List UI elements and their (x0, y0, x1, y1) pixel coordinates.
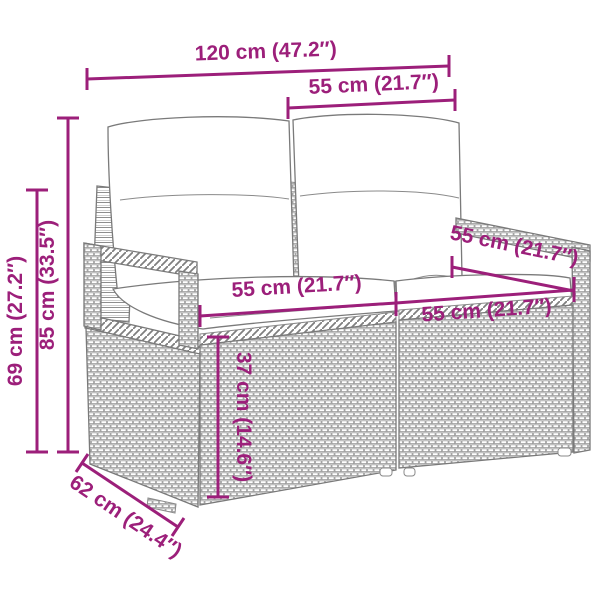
base-side-left (86, 328, 200, 507)
left-armrest-front-leg (179, 271, 198, 349)
dimension-label: 120 cm (47.2″) (194, 38, 337, 66)
dimension-label: 55 cm (21.7″) (448, 221, 580, 270)
back-cushion-right (293, 114, 462, 287)
dimension-label: 85 cm (33.5″) (36, 220, 59, 350)
left-armrest-back-leg (84, 243, 101, 330)
dimension-diagram-canvas: 120 cm (47.2″) 55 cm (21.7″) 85 cm (33.5… (0, 0, 600, 600)
back-cushion-left (108, 117, 294, 297)
dimension-line (288, 100, 455, 108)
sofa-foot (558, 448, 571, 456)
dimension-top-width: 55 cm (21.7″) (288, 70, 455, 119)
dimension-label: 37 cm (14.6″) (232, 352, 255, 482)
dimension-tick (172, 518, 184, 536)
base-front-left (200, 322, 396, 505)
dimension-label: 69 cm (27.2″) (4, 256, 27, 386)
sofa-dimension-diagram: 120 cm (47.2″) 55 cm (21.7″) 85 cm (33.5… (0, 0, 600, 600)
dimension-label: 55 cm (21.7″) (308, 70, 439, 99)
sofa-foot (380, 468, 392, 476)
dimension-height-overall: 85 cm (33.5″) (36, 118, 79, 452)
sofa-foot (404, 468, 415, 476)
base-front-right (399, 305, 573, 468)
